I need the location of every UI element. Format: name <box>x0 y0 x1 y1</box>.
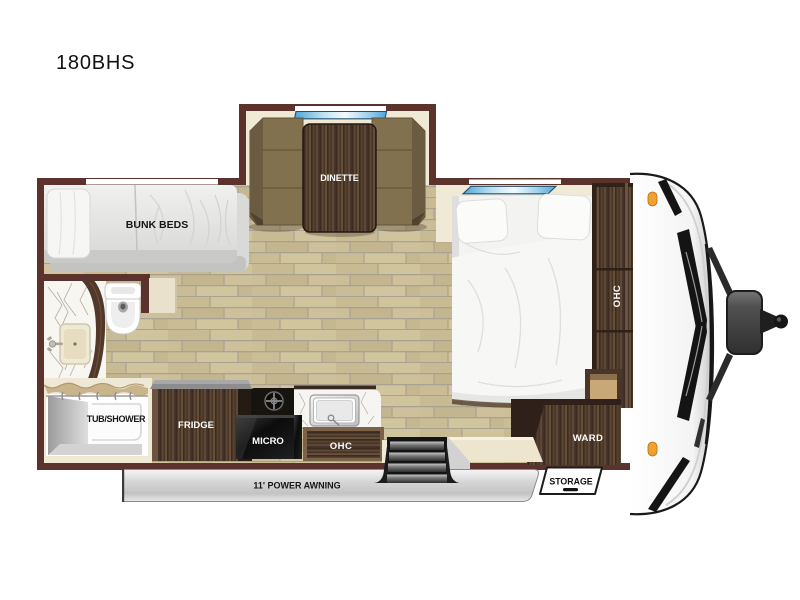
svg-text:TUB/SHOWER: TUB/SHOWER <box>87 414 146 424</box>
svg-text:180BHS: 180BHS <box>56 52 135 74</box>
svg-text:OHC: OHC <box>330 441 353 452</box>
svg-text:BUNK BEDS: BUNK BEDS <box>126 219 188 231</box>
svg-text:WARD: WARD <box>573 433 604 444</box>
svg-text:DINETTE: DINETTE <box>320 173 359 183</box>
svg-text:STORAGE: STORAGE <box>549 477 592 487</box>
svg-text:OHC: OHC <box>612 285 623 308</box>
svg-text:MICRO: MICRO <box>252 436 284 447</box>
svg-text:11' POWER AWNING: 11' POWER AWNING <box>253 481 340 491</box>
svg-text:FRIDGE: FRIDGE <box>178 420 214 431</box>
